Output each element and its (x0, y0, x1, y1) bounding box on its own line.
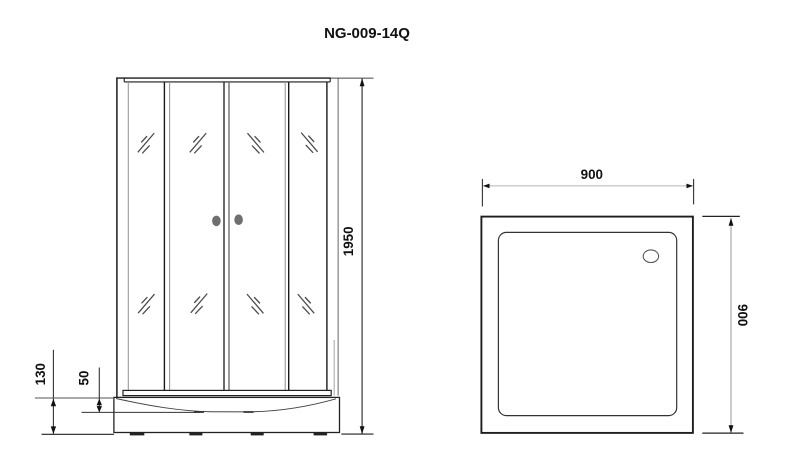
svg-text:NG-009-14Q: NG-009-14Q (324, 25, 410, 42)
svg-text:900: 900 (735, 304, 750, 326)
svg-text:50: 50 (76, 371, 91, 386)
svg-text:900: 900 (581, 167, 603, 182)
svg-text:130: 130 (33, 363, 48, 385)
svg-text:1950: 1950 (341, 226, 356, 256)
